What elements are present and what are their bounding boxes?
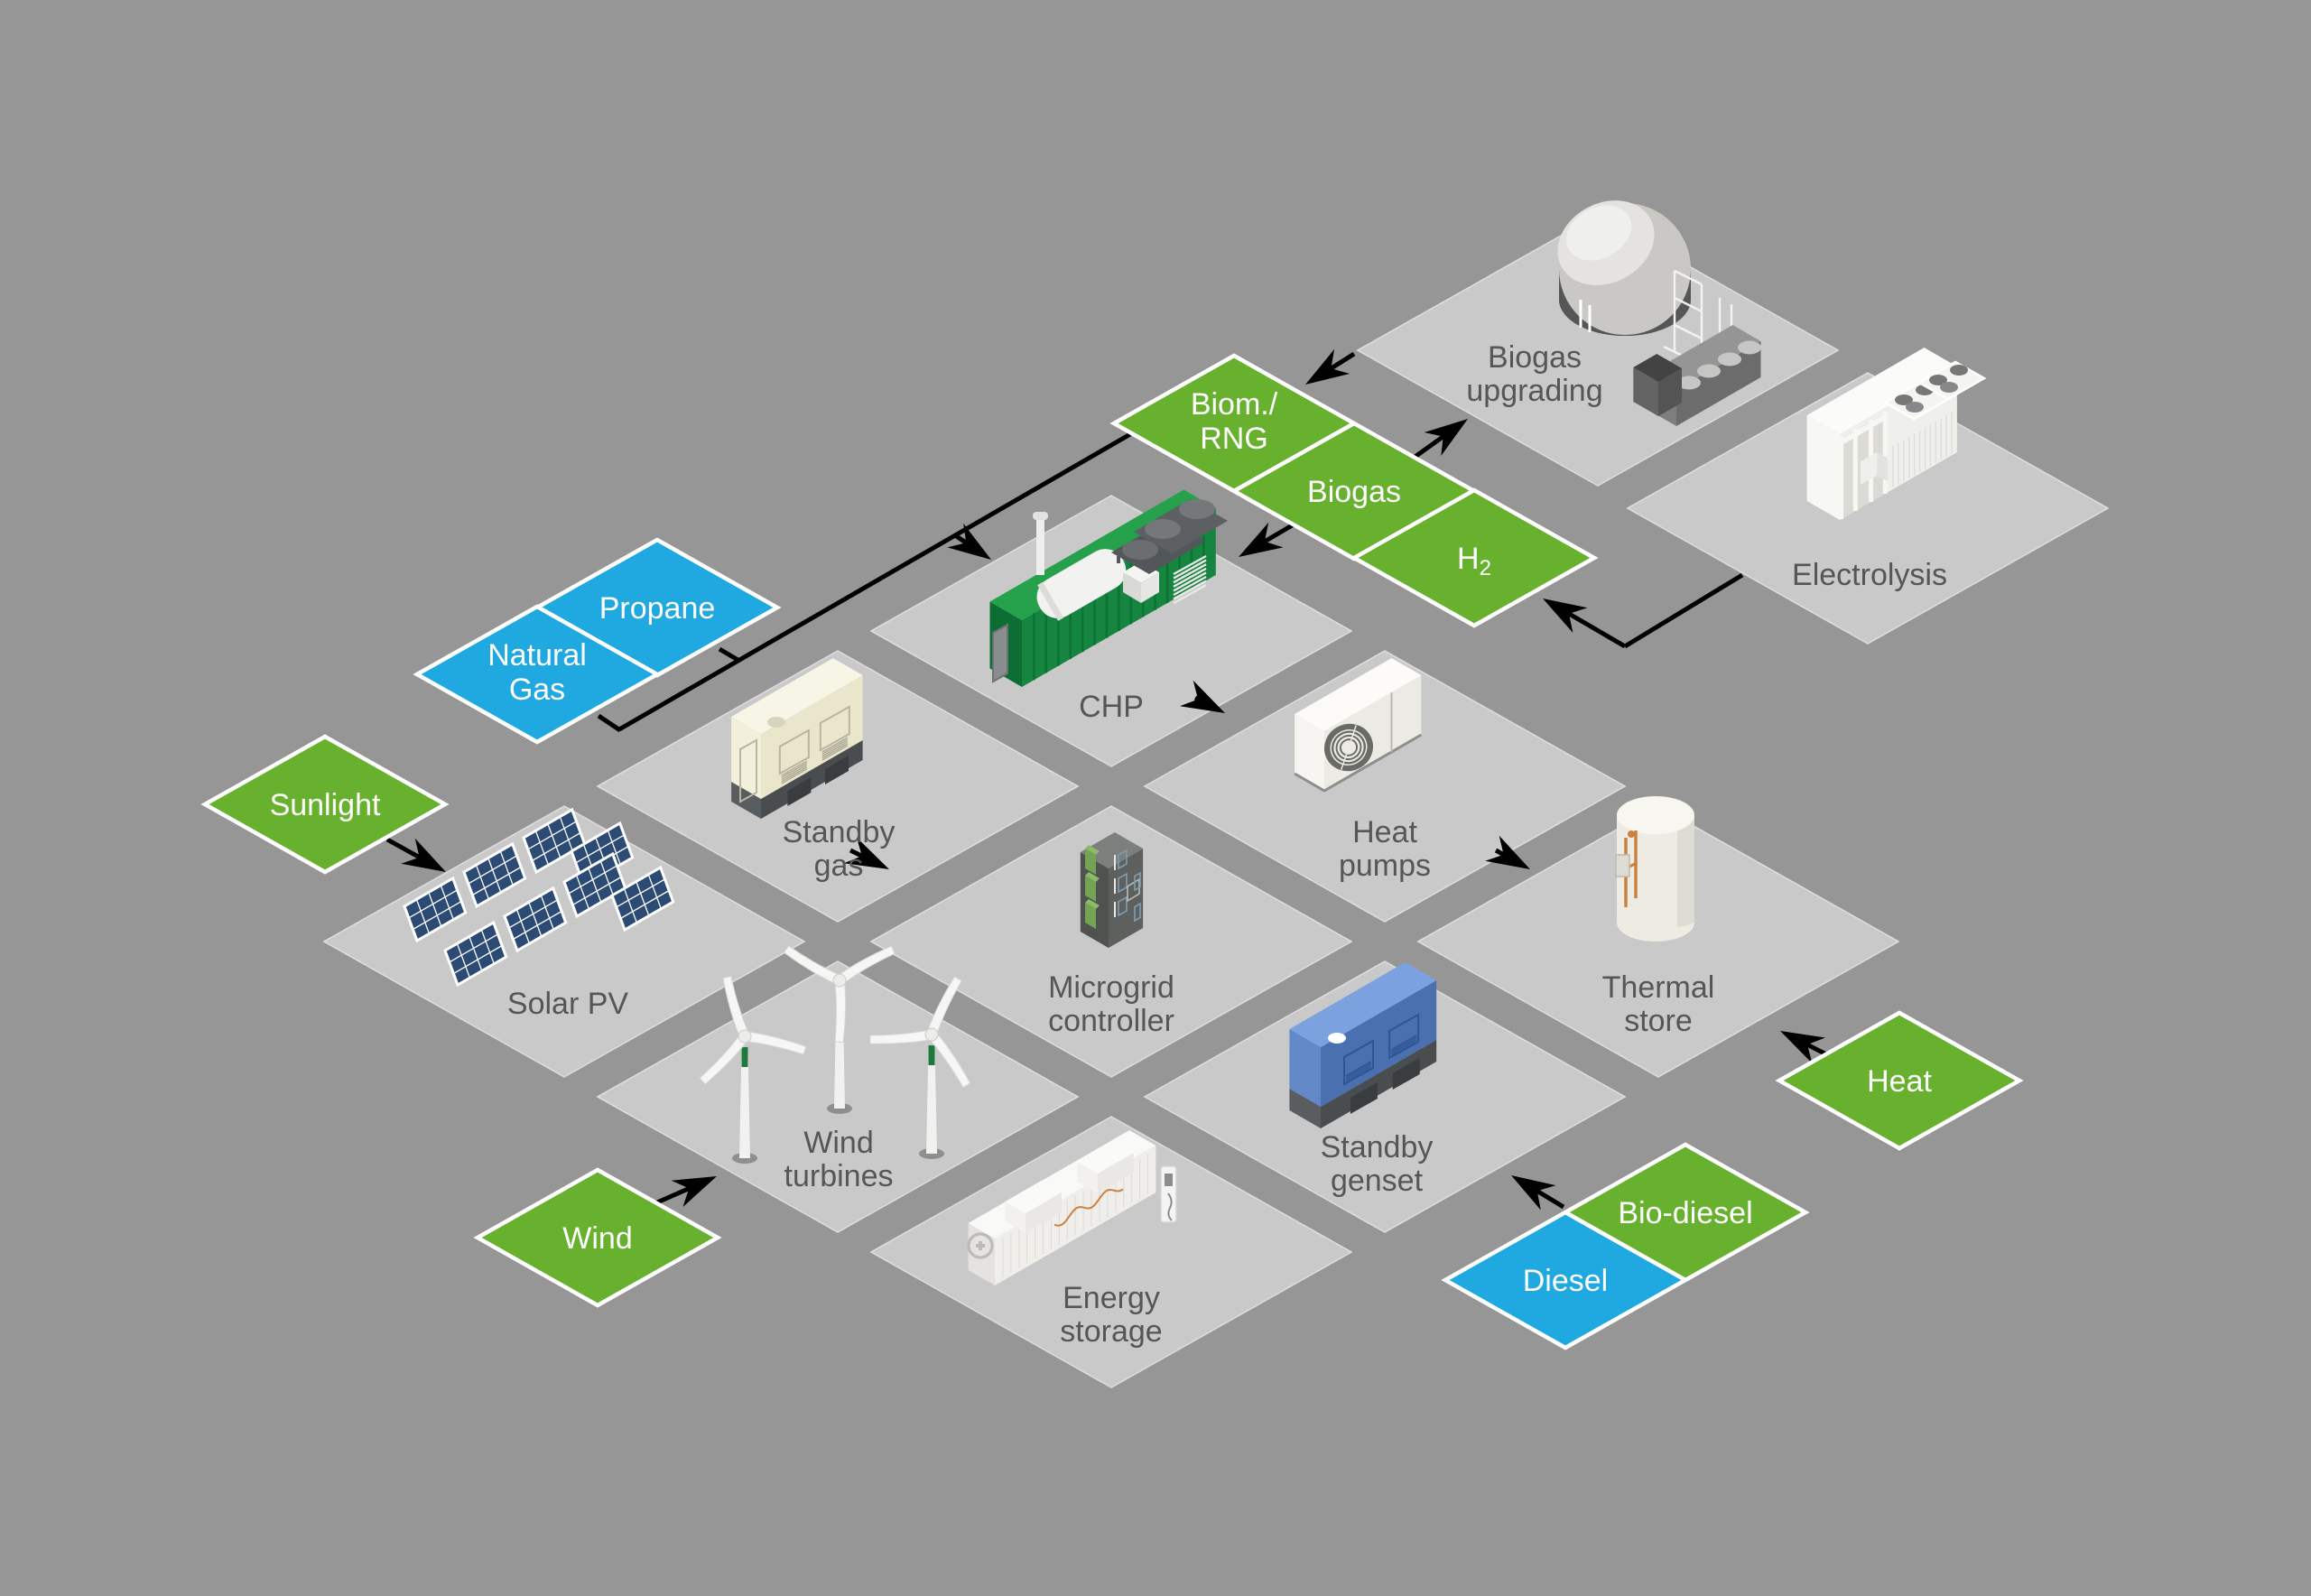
svg-text:Natural: Natural	[487, 638, 587, 673]
svg-text:Propane: Propane	[599, 591, 716, 626]
svg-text:gas: gas	[814, 849, 864, 883]
svg-text:Standby: Standby	[1321, 1130, 1434, 1165]
svg-text:turbines: turbines	[784, 1159, 894, 1193]
svg-text:Electrolysis: Electrolysis	[1792, 558, 1947, 592]
svg-text:Heat: Heat	[1352, 815, 1417, 849]
svg-text:Wind: Wind	[803, 1126, 873, 1160]
svg-text:Biogas: Biogas	[1488, 340, 1582, 375]
svg-text:Energy: Energy	[1063, 1281, 1160, 1315]
svg-text:Gas: Gas	[509, 673, 565, 707]
svg-text:Solar PV: Solar PV	[507, 987, 628, 1021]
svg-text:store: store	[1624, 1004, 1693, 1038]
svg-text:upgrading: upgrading	[1466, 374, 1602, 408]
svg-text:Standby: Standby	[783, 815, 896, 849]
svg-text:Biogas: Biogas	[1307, 475, 1401, 509]
svg-text:genset: genset	[1331, 1164, 1424, 1198]
svg-text:Heat: Heat	[1867, 1064, 1932, 1099]
svg-text:Sunlight: Sunlight	[270, 788, 381, 822]
svg-text:Microgrid: Microgrid	[1048, 970, 1174, 1005]
svg-text:storage: storage	[1060, 1314, 1162, 1349]
svg-text:Bio-diesel: Bio-diesel	[1618, 1196, 1752, 1230]
svg-text:Wind: Wind	[562, 1221, 632, 1256]
svg-text:RNG: RNG	[1200, 422, 1268, 456]
svg-text:CHP: CHP	[1079, 690, 1144, 724]
svg-text:pumps: pumps	[1339, 849, 1431, 883]
svg-text:controller: controller	[1048, 1004, 1174, 1038]
svg-text:Biom./: Biom./	[1191, 387, 1278, 422]
svg-text:Diesel: Diesel	[1523, 1264, 1608, 1298]
svg-text:Thermal: Thermal	[1602, 970, 1715, 1005]
